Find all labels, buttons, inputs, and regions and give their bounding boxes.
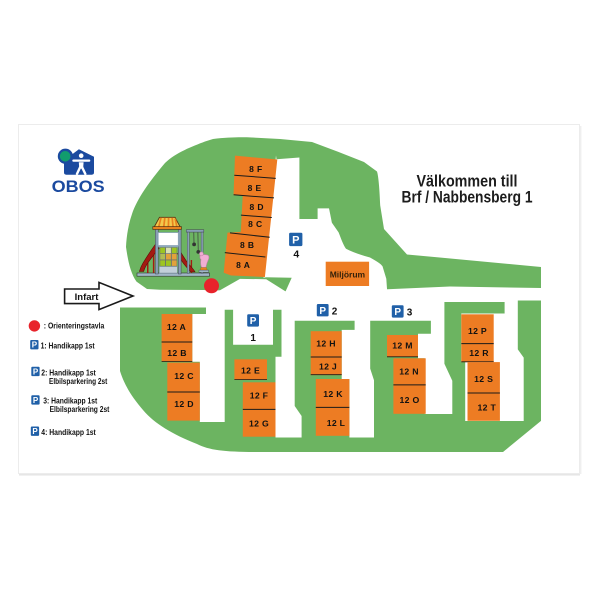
svg-text:OBOS: OBOS: [52, 178, 105, 196]
svg-text:P: P: [33, 367, 39, 376]
svg-text:12 R: 12 R: [469, 348, 489, 358]
svg-text:P: P: [32, 427, 38, 436]
svg-text:8 C: 8 C: [248, 219, 262, 229]
svg-text:8 D: 8 D: [249, 202, 263, 212]
svg-text:12 A: 12 A: [167, 322, 187, 332]
svg-text:1: 1: [250, 333, 256, 344]
svg-text:Elbilsparkering 2st: Elbilsparkering 2st: [50, 405, 110, 414]
svg-text:8 A: 8 A: [236, 260, 250, 270]
svg-text:12 D: 12 D: [174, 399, 194, 409]
svg-text:P: P: [32, 341, 38, 350]
svg-text:12 E: 12 E: [241, 366, 260, 376]
svg-text:8 E: 8 E: [248, 183, 262, 193]
svg-text:4: 4: [293, 249, 299, 261]
svg-text:12 J: 12 J: [319, 361, 337, 371]
svg-text:12 P: 12 P: [468, 326, 487, 336]
svg-text:12 O: 12 O: [399, 395, 419, 405]
svg-text:12 C: 12 C: [174, 371, 194, 381]
svg-text:Elbilsparkering 2st: Elbilsparkering 2st: [49, 377, 108, 386]
svg-text:12 L: 12 L: [327, 418, 346, 428]
svg-text:12 M: 12 M: [392, 341, 413, 351]
svg-text:12 K: 12 K: [323, 389, 343, 399]
svg-text:Infart: Infart: [75, 292, 100, 303]
svg-text:P: P: [319, 306, 326, 317]
svg-text:Miljörum: Miljörum: [330, 269, 366, 279]
svg-text:P: P: [394, 307, 401, 318]
svg-text:8 F: 8 F: [249, 164, 262, 174]
svg-text:3: 3: [407, 308, 413, 319]
svg-text:12 G: 12 G: [249, 418, 269, 428]
svg-text:12 T: 12 T: [478, 403, 497, 413]
svg-text:Brf / Nabbensberg 1: Brf / Nabbensberg 1: [402, 188, 533, 207]
svg-text:12 S: 12 S: [474, 374, 493, 384]
svg-text:12 F: 12 F: [250, 391, 269, 401]
svg-text:12 H: 12 H: [316, 339, 336, 349]
svg-text:P: P: [33, 396, 39, 405]
svg-text:8 B: 8 B: [240, 240, 254, 250]
svg-text:12 N: 12 N: [399, 367, 419, 377]
svg-text:P: P: [250, 316, 257, 327]
svg-text:: Orienteringstavla: : Orienteringstavla: [44, 322, 105, 331]
svg-text:1: Handikapp 1st: 1: Handikapp 1st: [41, 341, 95, 350]
svg-text:12 B: 12 B: [167, 348, 187, 358]
svg-text:4: Handikapp 1st: 4: Handikapp 1st: [41, 428, 96, 437]
svg-text:P: P: [292, 235, 299, 247]
svg-text:2: 2: [332, 307, 338, 318]
